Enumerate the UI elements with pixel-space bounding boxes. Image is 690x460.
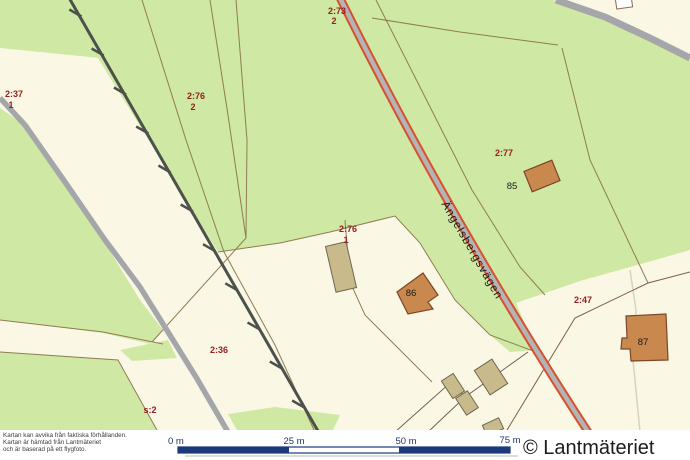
- disclaimer-line-3: och är baserad på ett flygfoto.: [3, 445, 87, 453]
- svg-text:2:73: 2:73: [328, 6, 346, 16]
- svg-text:1: 1: [8, 100, 13, 110]
- svg-text:2: 2: [190, 102, 195, 112]
- scale-label-50: 50 m: [395, 436, 416, 447]
- svg-text:2:77: 2:77: [495, 148, 513, 158]
- disclaimer-line-2: Kartan är hämtad från Lantmäteriet: [3, 438, 101, 446]
- lantmateriet-copyright: © Lantmäteriet: [523, 437, 655, 459]
- svg-text:2:37: 2:37: [5, 89, 23, 99]
- parcel-label-2-77: 2:77: [495, 148, 513, 158]
- footer: Kartan kan avvika från faktiska förhålla…: [0, 430, 690, 460]
- scale-label-0: 0 m: [168, 436, 184, 447]
- scale-label-25: 25 m: [283, 436, 304, 447]
- svg-text:2:76: 2:76: [187, 91, 205, 101]
- svg-text:2:36: 2:36: [210, 345, 228, 355]
- house-number-87: 87: [638, 337, 649, 348]
- scale-label-75: 75 m: [499, 435, 520, 446]
- disclaimer-line-1: Kartan kan avvika från faktiska förhålla…: [3, 431, 127, 439]
- cadastral-map[interactable]: Ängelsbergsvägen 2:73 2 2:37 1 2:76 2 2:…: [0, 0, 690, 460]
- map-viewport: Ängelsbergsvägen 2:73 2 2:37 1 2:76 2 2:…: [0, 0, 690, 460]
- white-building: [615, 0, 632, 9]
- svg-text:2:76: 2:76: [339, 224, 357, 234]
- parcel-label-2-47: 2:47: [574, 295, 592, 305]
- svg-text:2: 2: [331, 16, 336, 26]
- svg-text:2:47: 2:47: [574, 295, 592, 305]
- house-number-85: 85: [507, 181, 518, 192]
- parcel-label-2-36: 2:36: [210, 345, 228, 355]
- house-number-86: 86: [406, 288, 417, 299]
- svg-text:s:2: s:2: [143, 405, 156, 415]
- svg-text:1: 1: [343, 235, 348, 245]
- parcel-label-s-2: s:2: [143, 405, 156, 415]
